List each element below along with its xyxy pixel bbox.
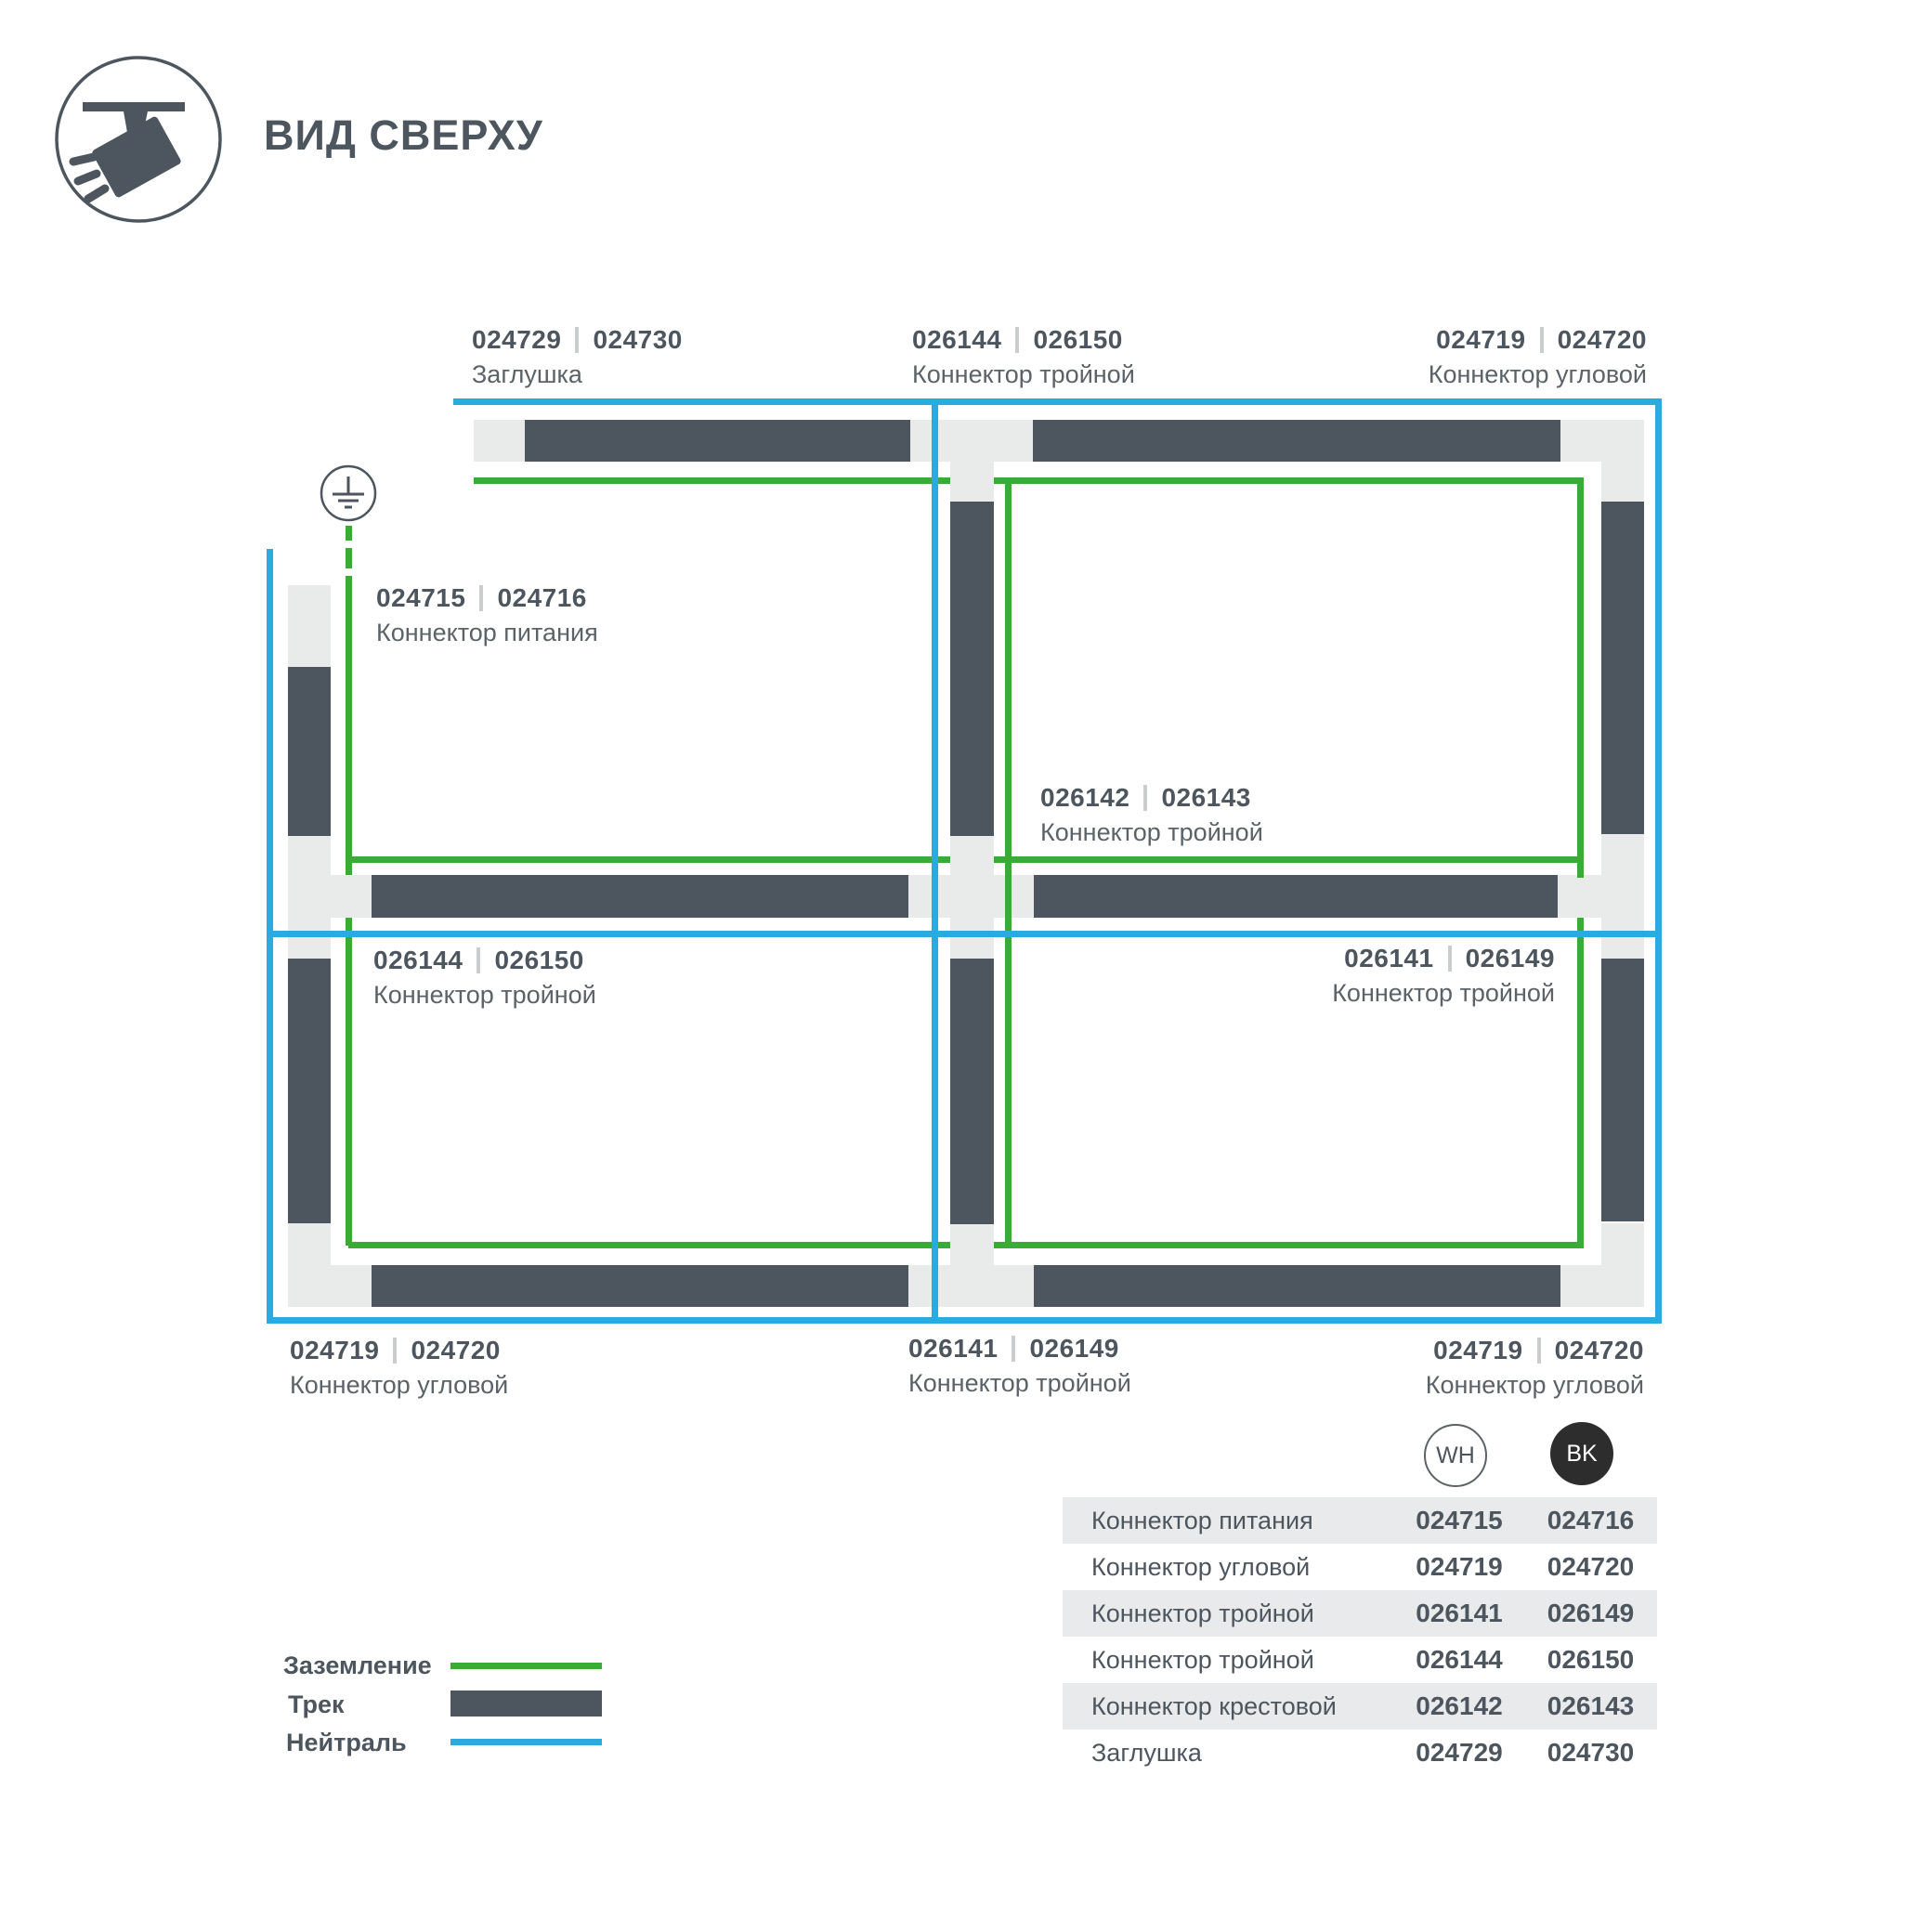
track-segment <box>1034 875 1558 918</box>
ground-wire-dash <box>346 526 352 541</box>
code-divider <box>479 585 483 611</box>
article-codes: 024719024720 <box>290 1336 508 1365</box>
part-name: Коннектор тройной <box>1063 1646 1394 1675</box>
legend-track-swatch <box>450 1690 602 1717</box>
code-divider <box>393 1338 397 1364</box>
table-row: Коннектор тройной 026144 026150 <box>1063 1637 1657 1683</box>
part-code-bk: 026143 <box>1524 1691 1657 1721</box>
legend-label-track: Трек <box>288 1690 345 1719</box>
table-row: Коннектор питания 024715 024716 <box>1063 1497 1657 1544</box>
article-codes: 024719024720 <box>1433 1336 1644 1365</box>
label-tee-top: 026144026150 Коннектор тройной <box>912 325 1135 389</box>
part-code-wh: 026141 <box>1394 1599 1524 1628</box>
track-segment <box>1601 502 1644 834</box>
label-tee-mid-left: 026144026150 Коннектор тройной <box>373 946 596 1010</box>
table-row: Коннектор угловой 024719 024720 <box>1063 1544 1657 1590</box>
neutral-wire <box>1655 398 1662 1324</box>
connector-name: Коннектор угловой <box>1426 1371 1644 1400</box>
part-code-wh: 024719 <box>1394 1552 1524 1582</box>
neutral-wire <box>453 398 1662 405</box>
corner-connector-piece <box>288 1223 331 1267</box>
code-divider <box>575 327 579 353</box>
label-power-feed: 024715024716 Коннектор питания <box>376 583 598 647</box>
article-codes: 026142026143 <box>1040 783 1263 813</box>
code-divider <box>476 947 480 973</box>
tee-connector-piece <box>950 462 994 503</box>
legend-label-neutral: Нейтраль <box>286 1729 407 1757</box>
tee-connector-piece <box>950 1224 994 1267</box>
code-divider <box>1143 785 1147 811</box>
ground-wire <box>346 585 352 875</box>
label-corner-top-right: 024719024720 Коннектор угловой <box>1429 325 1647 389</box>
connector-name: Коннектор питания <box>376 619 598 647</box>
code-divider <box>1540 327 1544 353</box>
label-end-cap: 024729024730 Заглушка <box>472 325 683 389</box>
ground-wire <box>348 856 950 863</box>
part-code-wh: 024729 <box>1394 1738 1524 1768</box>
tee-connector-piece <box>1601 834 1644 959</box>
track-segment <box>1034 1265 1560 1307</box>
part-name: Коннектор питания <box>1063 1507 1394 1535</box>
track-spotlight-icon <box>47 48 229 230</box>
track-segment <box>372 875 908 918</box>
code-divider <box>1448 946 1452 972</box>
ground-wire <box>1577 918 1584 1246</box>
track-segment <box>950 959 994 1224</box>
part-code-bk: 024730 <box>1524 1738 1657 1768</box>
ground-wire <box>1005 481 1012 1246</box>
track-segment <box>1033 420 1560 462</box>
article-codes: 024719024720 <box>1436 325 1647 355</box>
neutral-wire <box>932 398 938 1324</box>
legend-ground-swatch <box>450 1663 602 1669</box>
tee-connector-piece <box>908 1265 1034 1307</box>
corner-connector-piece <box>1601 1223 1644 1267</box>
code-divider <box>1537 1338 1541 1364</box>
corner-connector-piece <box>288 1265 372 1307</box>
corner-connector-piece <box>1601 462 1644 503</box>
page: ВИД СВЕРХУ <box>0 0 1932 1932</box>
table-row: Коннектор тройной 026141 026149 <box>1063 1590 1657 1637</box>
article-codes: 026141026149 <box>1344 944 1555 973</box>
part-code-wh: 026142 <box>1394 1691 1524 1721</box>
label-tee-bottom: 026141026149 Коннектор тройной <box>908 1334 1131 1398</box>
track-segment <box>950 502 994 836</box>
article-codes: 026141026149 <box>908 1334 1131 1364</box>
track-segment <box>525 420 910 462</box>
article-codes: 024729024730 <box>472 325 683 355</box>
code-divider <box>1012 1336 1015 1362</box>
article-codes: 026144026150 <box>373 946 596 975</box>
ground-wire <box>994 856 1584 863</box>
ground-wire-dash <box>346 548 352 568</box>
part-code-wh: 024715 <box>1394 1506 1524 1535</box>
tee-connector-piece <box>331 875 373 918</box>
connector-name: Коннектор тройной <box>1040 818 1263 847</box>
ground-wire <box>1577 481 1584 878</box>
connector-name: Коннектор тройной <box>908 1369 1131 1398</box>
part-code-bk: 024720 <box>1524 1552 1657 1582</box>
table-row: Заглушка 024729 024730 <box>1063 1730 1657 1776</box>
track-segment <box>1601 959 1644 1221</box>
track-segment <box>372 1265 908 1307</box>
ground-wire <box>994 477 1584 484</box>
part-name: Заглушка <box>1063 1739 1394 1768</box>
label-corner-bottom-left: 024719024720 Коннектор угловой <box>290 1336 508 1400</box>
connector-name: Заглушка <box>472 360 683 389</box>
connector-name: Коннектор тройной <box>1332 979 1555 1008</box>
legend-label-ground: Заземление <box>283 1651 432 1680</box>
part-code-bk: 024716 <box>1524 1506 1657 1535</box>
corner-connector-piece <box>1560 1265 1644 1307</box>
earth-ground-icon <box>318 463 379 524</box>
part-name: Коннектор тройной <box>1063 1599 1394 1628</box>
label-cross-center: 026142026143 Коннектор тройной <box>1040 783 1263 847</box>
part-name: Коннектор угловой <box>1063 1553 1394 1582</box>
connector-name: Коннектор тройной <box>912 360 1135 389</box>
neutral-wire <box>267 1317 1662 1324</box>
ground-wire <box>346 918 352 1246</box>
track-segment <box>288 667 331 836</box>
ground-wire <box>994 1242 1584 1248</box>
neutral-wire <box>267 931 1662 937</box>
connector-name: Коннектор угловой <box>290 1371 508 1400</box>
tee-connector-piece <box>1558 875 1601 918</box>
end-cap-piece <box>474 420 525 462</box>
article-codes: 026144026150 <box>912 325 1135 355</box>
color-badge-black: BK <box>1550 1422 1613 1485</box>
power-connector-piece <box>288 585 331 667</box>
part-code-bk: 026149 <box>1524 1599 1657 1628</box>
parts-table: Коннектор питания 024715 024716 Коннекто… <box>1063 1497 1657 1776</box>
code-divider <box>1015 327 1019 353</box>
track-segment <box>288 959 331 1223</box>
tee-connector-piece <box>910 420 1033 462</box>
tee-connector-piece <box>288 836 331 959</box>
ground-wire-dash <box>346 576 352 588</box>
label-corner-bottom-right: 024719024720 Коннектор угловой <box>1426 1336 1644 1400</box>
page-title: ВИД СВЕРХУ <box>264 111 543 160</box>
label-tee-mid-right: 026141026149 Коннектор тройной <box>1332 944 1555 1008</box>
article-codes: 024715024716 <box>376 583 598 613</box>
table-row: Коннектор крестовой 026142 026143 <box>1063 1683 1657 1730</box>
legend-neutral-swatch <box>450 1739 602 1745</box>
part-code-bk: 026150 <box>1524 1645 1657 1675</box>
corner-connector-piece <box>1560 420 1644 462</box>
ground-wire <box>474 477 950 484</box>
cross-connector-piece <box>908 875 1034 918</box>
connector-name: Коннектор угловой <box>1429 360 1647 389</box>
color-badge-white: WH <box>1424 1424 1487 1487</box>
part-name: Коннектор крестовой <box>1063 1692 1394 1721</box>
connector-name: Коннектор тройной <box>373 981 596 1010</box>
ground-wire <box>348 1242 950 1248</box>
part-code-wh: 026144 <box>1394 1645 1524 1675</box>
